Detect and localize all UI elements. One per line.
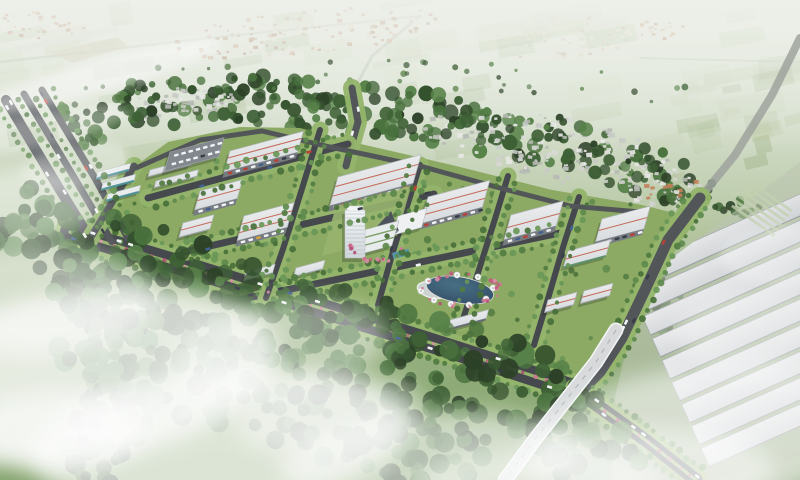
scene-svg bbox=[0, 0, 800, 480]
layer-clouds bbox=[0, 0, 800, 480]
aerial-masterplan-render bbox=[0, 0, 800, 480]
